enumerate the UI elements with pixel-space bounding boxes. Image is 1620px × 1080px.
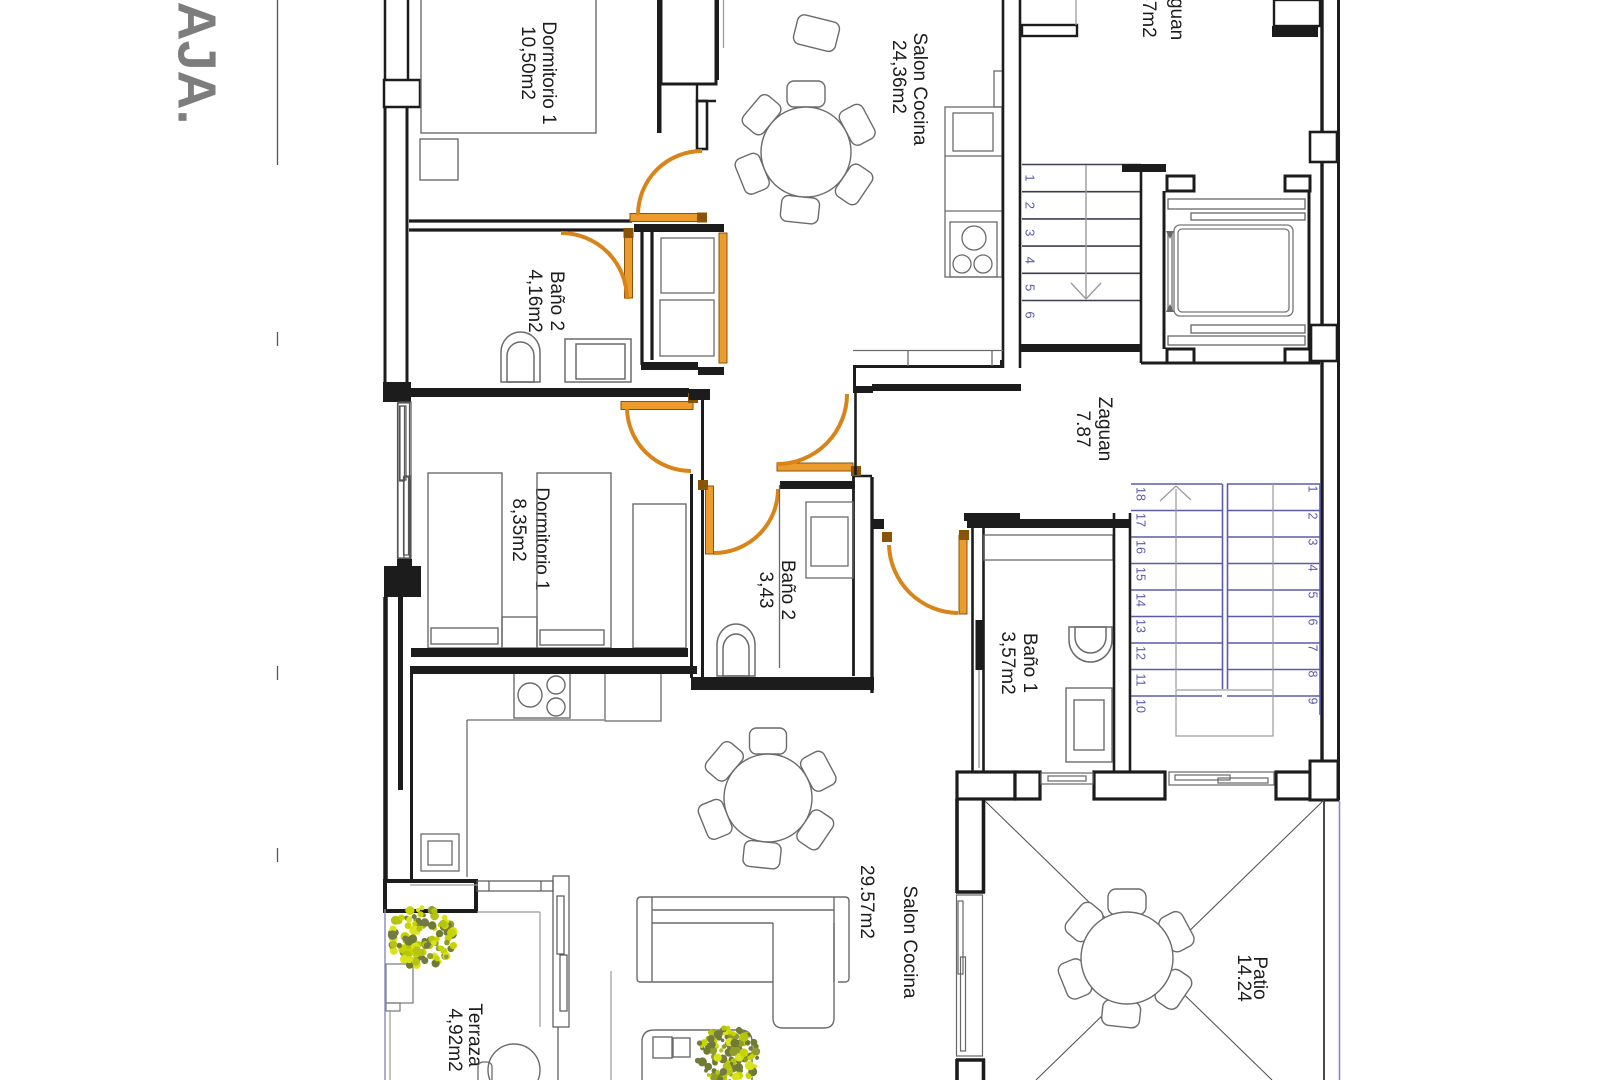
svg-text:8: 8 bbox=[1306, 671, 1320, 678]
svg-text:14.24: 14.24 bbox=[1233, 954, 1254, 1002]
svg-text:Zaguan: Zaguan bbox=[1166, 0, 1187, 40]
svg-text:Zaguan: Zaguan bbox=[1094, 397, 1115, 461]
svg-text:5: 5 bbox=[1023, 284, 1038, 291]
svg-text:3: 3 bbox=[1306, 539, 1320, 546]
svg-text:4,92m2: 4,92m2 bbox=[444, 1008, 465, 1071]
svg-text:12: 12 bbox=[1134, 646, 1148, 660]
svg-text:15: 15 bbox=[1134, 567, 1148, 581]
svg-text:6: 6 bbox=[1306, 619, 1320, 626]
svg-text:6: 6 bbox=[1023, 311, 1038, 318]
svg-text:4: 4 bbox=[1306, 565, 1320, 572]
svg-text:10: 10 bbox=[1134, 699, 1148, 713]
svg-text:4,16m2: 4,16m2 bbox=[524, 269, 545, 332]
svg-text:10,50m2: 10,50m2 bbox=[517, 26, 538, 100]
svg-text:3,43: 3,43 bbox=[755, 572, 776, 609]
svg-text:Baño 2: Baño 2 bbox=[546, 271, 567, 331]
svg-text:14: 14 bbox=[1134, 593, 1148, 607]
svg-text:1: 1 bbox=[1023, 174, 1038, 181]
svg-text:Terraza: Terraza bbox=[464, 1003, 485, 1067]
svg-text:2: 2 bbox=[1023, 202, 1038, 209]
svg-text:13: 13 bbox=[1134, 619, 1148, 633]
svg-text:5,47m2: 5,47m2 bbox=[1138, 0, 1159, 38]
svg-text:8,35m2: 8,35m2 bbox=[508, 498, 529, 561]
svg-text:Baño 1: Baño 1 bbox=[1019, 633, 1040, 693]
svg-text:16: 16 bbox=[1134, 540, 1148, 554]
svg-text:5: 5 bbox=[1306, 592, 1320, 599]
svg-text:29.57m2: 29.57m2 bbox=[856, 865, 877, 939]
svg-text:Dormitorio 1: Dormitorio 1 bbox=[538, 21, 559, 124]
svg-text:3,57m2: 3,57m2 bbox=[997, 631, 1018, 694]
svg-text:2: 2 bbox=[1306, 513, 1320, 520]
svg-text:Dormitorio 1: Dormitorio 1 bbox=[531, 487, 552, 590]
svg-text:9: 9 bbox=[1306, 698, 1320, 705]
svg-text:7: 7 bbox=[1306, 645, 1320, 652]
svg-text:18: 18 bbox=[1134, 487, 1148, 501]
svg-text:11: 11 bbox=[1134, 674, 1148, 687]
svg-text:4: 4 bbox=[1023, 257, 1038, 264]
svg-text:1: 1 bbox=[1306, 486, 1320, 493]
svg-text:Salon Cocina: Salon Cocina bbox=[899, 885, 920, 998]
svg-text:3: 3 bbox=[1023, 229, 1038, 236]
svg-text:AJA.: AJA. bbox=[167, 1, 227, 124]
svg-text:17: 17 bbox=[1134, 513, 1148, 527]
svg-text:24,36m2: 24,36m2 bbox=[888, 40, 909, 114]
svg-text:Salon Cocina: Salon Cocina bbox=[909, 32, 930, 145]
svg-text:7.87: 7.87 bbox=[1072, 411, 1093, 448]
